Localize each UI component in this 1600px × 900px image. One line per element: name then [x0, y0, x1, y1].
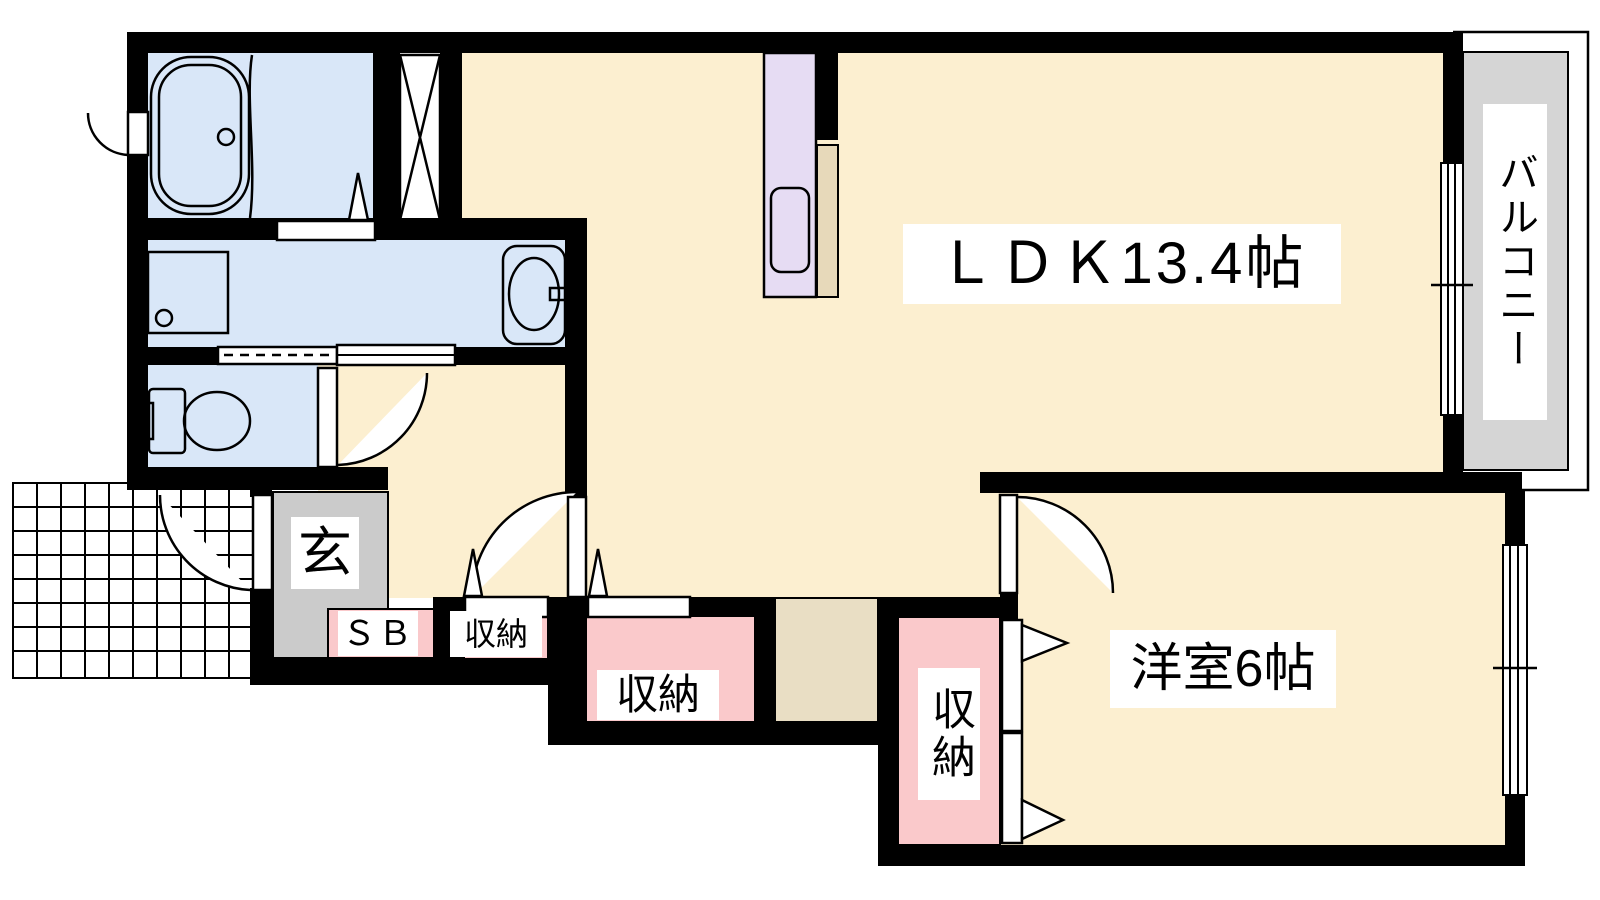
wall-step-left [755, 597, 775, 722]
wall-bottom-left [250, 658, 550, 685]
wall-west-right-lower [1505, 795, 1525, 850]
wall-kitchen-stub [816, 32, 838, 140]
wall-top [127, 32, 1463, 53]
wall-bath-right [373, 32, 400, 240]
floor-plan-drawing [0, 0, 1600, 900]
wall-ldk-right-upper [1443, 32, 1463, 163]
wall-left-lower [127, 155, 148, 485]
bathroom-floor [148, 53, 373, 218]
wall-washroom-bottom-left [127, 347, 220, 365]
kitchen-counter [817, 145, 838, 297]
entrance-label: 玄 [291, 517, 359, 589]
washroom-doors [218, 345, 455, 365]
wall-washroom-bottom-right [453, 347, 585, 365]
wall-west-room-left-stub [1000, 593, 1018, 622]
shoe-box-label: ＳＢ [338, 611, 418, 656]
toilet-floor [148, 365, 318, 467]
wall-west-right-upper [1505, 490, 1525, 545]
western-room-label: 洋室6帖 [1110, 630, 1336, 708]
floor-plan: ＬＤＫ13.4帖 洋室6帖 バルコニー 玄 ＳＢ 収納 収納 収納 [0, 0, 1600, 900]
wall-closet-vert-top [878, 597, 1002, 618]
wall-bottom-right [878, 845, 1525, 866]
step-area [775, 598, 878, 722]
bath-exterior-door [88, 112, 148, 155]
wall-below-entry-door [250, 588, 272, 662]
wall-bottom-mid [548, 722, 898, 745]
closet-mid-label: 収納 [597, 670, 719, 720]
wall-ldk-right-lower [1443, 415, 1463, 473]
ldk-label: ＬＤＫ13.4帖 [903, 224, 1341, 304]
closet-western-label: 収納 [918, 668, 980, 800]
balcony-label: バルコニー [1483, 104, 1547, 420]
wall-closet-vert-left [878, 597, 898, 866]
wall-west-room-top [980, 472, 1522, 493]
wall-pipe-right [440, 32, 462, 240]
pipe-space [400, 55, 440, 220]
wall-left-upper [127, 32, 148, 113]
closet-small-label: 収納 [450, 611, 542, 657]
